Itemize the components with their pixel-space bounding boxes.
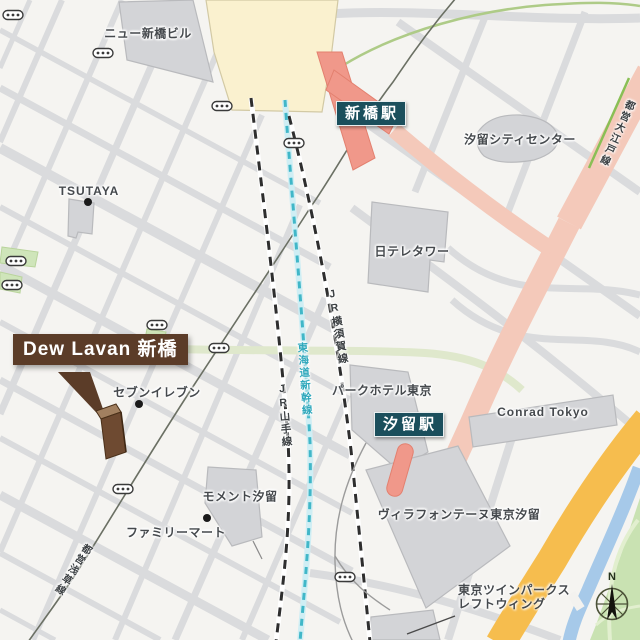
traffic-light-icon: [284, 139, 304, 148]
map-base-layer: [0, 0, 640, 640]
label-park-hotel-tokyo: パークホテル東京: [332, 382, 432, 399]
label-villa-fontaine: ヴィラフォンテーヌ東京汐留: [378, 506, 541, 523]
traffic-light-icon: [2, 281, 22, 290]
traffic-light-icon: [209, 344, 229, 353]
traffic-light-icon: [212, 102, 232, 111]
label-tsutaya: TSUTAYA: [59, 184, 120, 198]
label-twin-parks: 東京ツインパークス レフトウィング: [458, 583, 570, 611]
label-shiodome-city-center: 汐留シティセンター: [464, 131, 576, 148]
map-canvas: ニュー新橋ビル TSUTAYA 汐留シティセンター 日テレタワー パークホテル東…: [0, 0, 640, 640]
label-twin-parks-line2: レフトウィング: [458, 597, 570, 611]
compass-north-label: N: [608, 571, 616, 583]
shimbashi-station-badge: 新橋駅: [336, 101, 406, 126]
traffic-light-icon: [3, 11, 23, 20]
tsutaya-dot: [84, 198, 92, 206]
traffic-light-icon: [93, 49, 113, 58]
label-new-shimbashi-building: ニュー新橋ビル: [104, 25, 192, 42]
dew-lavan-label: Dew Lavan 新橋: [13, 334, 188, 365]
label-familymart: ファミリーマート: [126, 524, 226, 541]
label-ntv-tower: 日テレタワー: [374, 243, 449, 260]
traffic-light-icon: [113, 485, 133, 494]
traffic-light-icon: [6, 257, 26, 266]
label-moment-shiodome: モメント汐留: [202, 488, 277, 505]
seven-eleven-dot: [135, 400, 143, 408]
label-conrad-tokyo: Conrad Tokyo: [497, 405, 589, 419]
label-twin-parks-line1: 東京ツインパークス: [458, 583, 570, 597]
traffic-light-icon: [147, 321, 167, 330]
moment-dot: [203, 514, 211, 522]
shiodome-station-badge: 汐留駅: [374, 412, 444, 437]
traffic-light-icon: [335, 573, 355, 582]
label-seven-eleven: セブンイレブン: [113, 384, 201, 401]
